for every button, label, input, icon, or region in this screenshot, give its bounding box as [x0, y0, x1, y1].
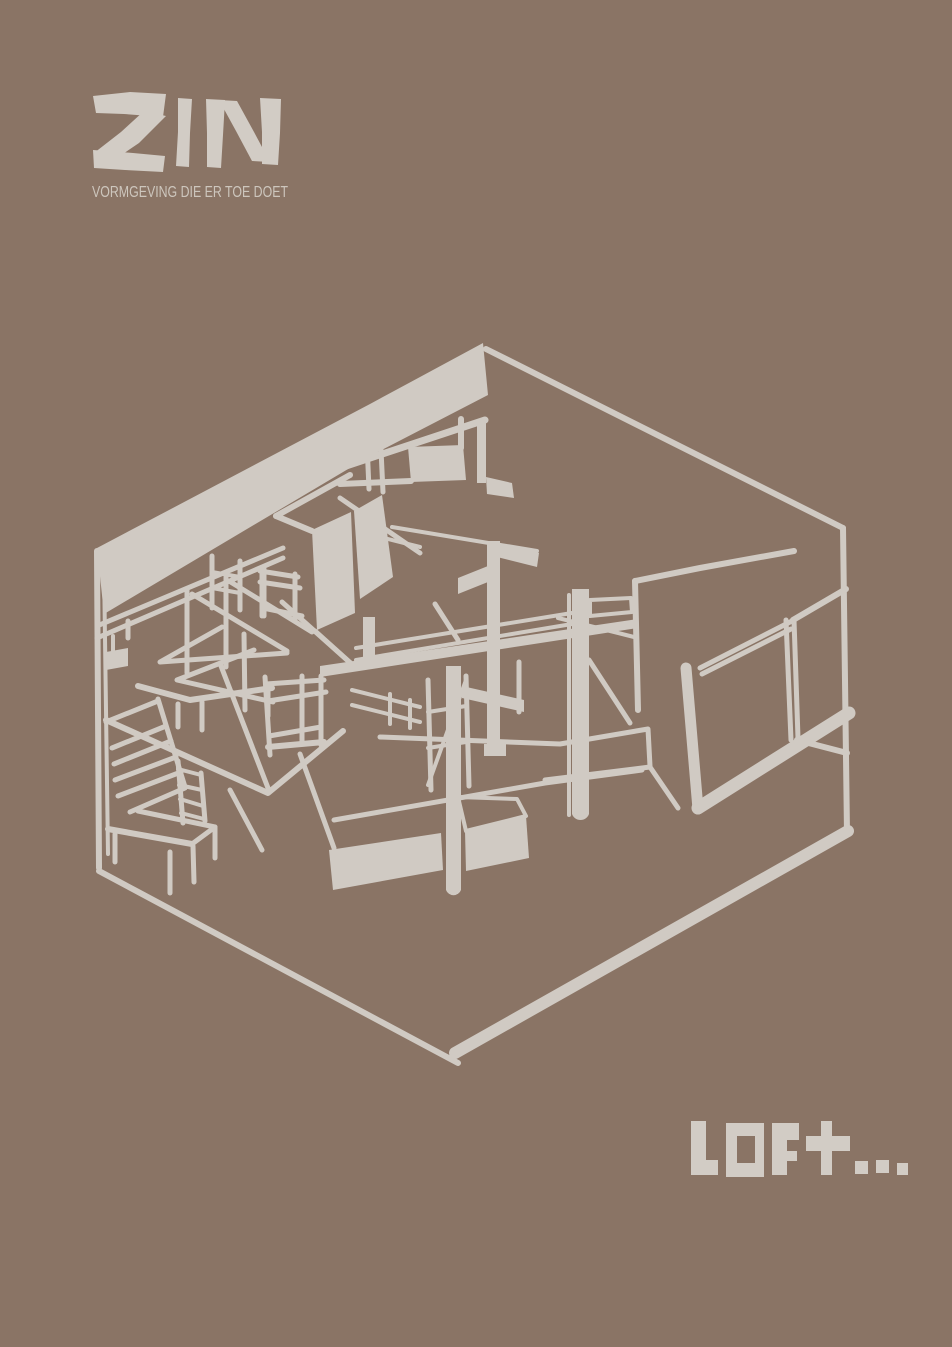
svg-text:VORMGEVING DIE ER TOE DOET: VORMGEVING DIE ER TOE DOET	[92, 184, 288, 201]
